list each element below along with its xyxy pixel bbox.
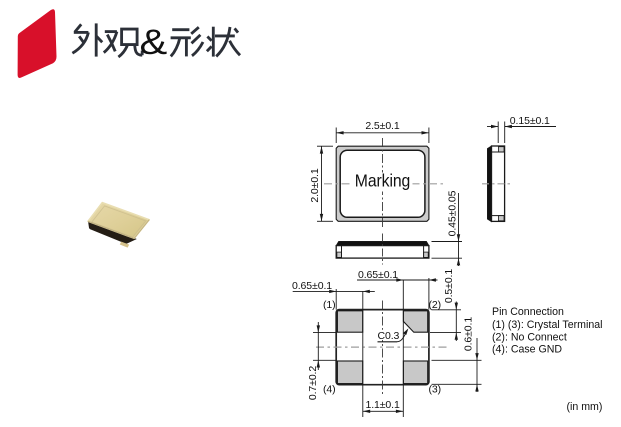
svg-text:0.6±0.1: 0.6±0.1	[462, 317, 474, 352]
svg-text:2.5±0.1: 2.5±0.1	[365, 120, 400, 132]
svg-text:0.5±0.1: 0.5±0.1	[443, 269, 455, 304]
svg-text:&: &	[140, 23, 168, 62]
svg-text:(in mm): (in mm)	[567, 401, 603, 413]
svg-text:0.65±0.1: 0.65±0.1	[292, 280, 332, 292]
svg-text:(2): No Connect: (2): No Connect	[492, 331, 567, 343]
svg-text:1.1±0.1: 1.1±0.1	[365, 399, 400, 411]
svg-text:(3): (3)	[429, 384, 442, 396]
svg-text:(1): (1)	[323, 299, 336, 311]
svg-text:0.7±0.2: 0.7±0.2	[307, 366, 319, 401]
svg-text:(4): (4)	[323, 384, 336, 396]
svg-text:Pin Connection: Pin Connection	[492, 306, 564, 318]
svg-text:C0.3: C0.3	[378, 330, 400, 342]
svg-text:(4): Case GND: (4): Case GND	[492, 343, 562, 355]
svg-text:(2): (2)	[429, 299, 442, 311]
svg-text:(1) (3): Crystal Terminal: (1) (3): Crystal Terminal	[492, 319, 602, 331]
svg-text:0.65±0.1: 0.65±0.1	[358, 269, 398, 281]
svg-text:0.15±0.1: 0.15±0.1	[510, 115, 550, 127]
svg-text:Marking: Marking	[355, 170, 410, 190]
svg-text:0.45±0.05: 0.45±0.05	[447, 190, 459, 236]
svg-text:2.0±0.1: 2.0±0.1	[309, 168, 321, 203]
